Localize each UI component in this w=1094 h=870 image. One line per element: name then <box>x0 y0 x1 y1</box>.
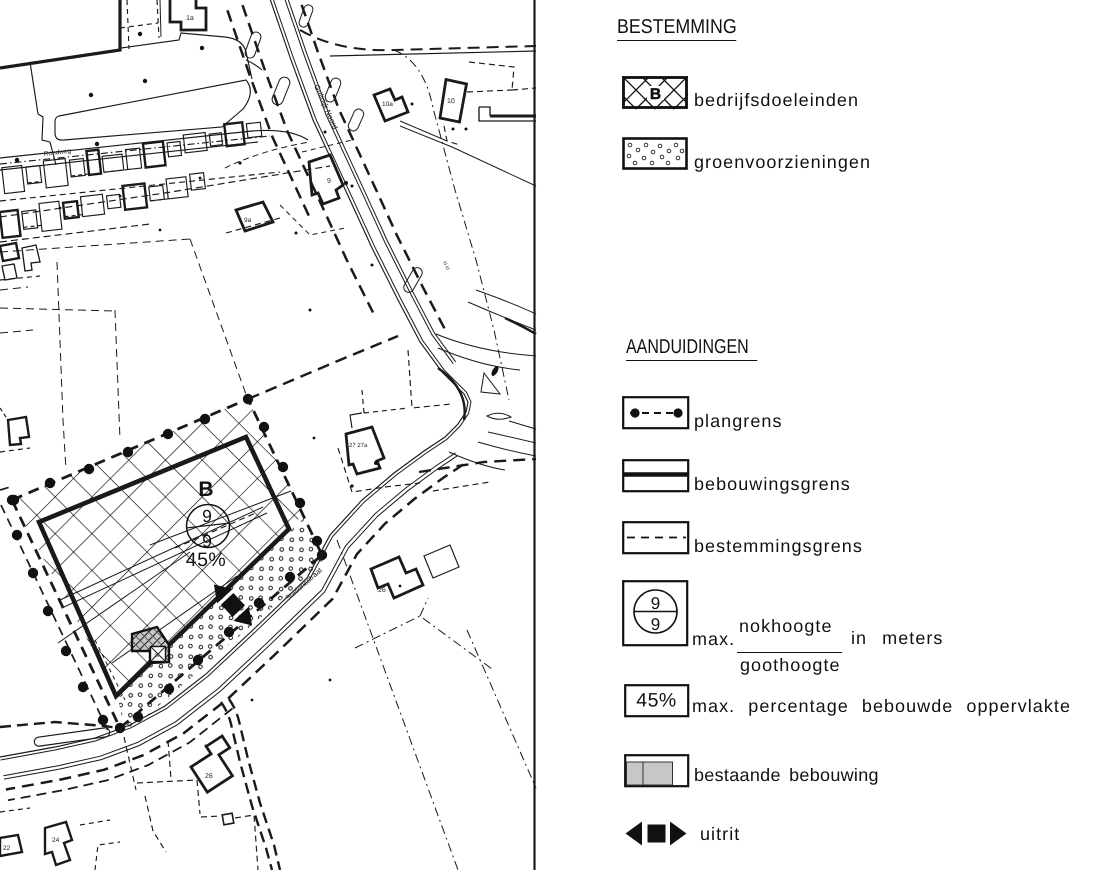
svg-text:24: 24 <box>52 837 60 844</box>
svg-text:9: 9 <box>651 615 660 634</box>
svg-text:10a: 10a <box>382 101 393 108</box>
svg-text:26: 26 <box>378 587 386 594</box>
svg-text:27 27a: 27 27a <box>349 442 368 449</box>
svg-text:9: 9 <box>202 531 212 551</box>
svg-text:9: 9 <box>202 506 212 526</box>
svg-text:45%: 45% <box>186 549 227 571</box>
svg-text:9: 9 <box>327 178 331 185</box>
svg-text:26: 26 <box>205 773 213 780</box>
svg-text:36: 36 <box>154 653 160 659</box>
svg-text:B: B <box>650 86 661 103</box>
svg-text:45%: 45% <box>636 690 677 712</box>
svg-text:9a: 9a <box>244 217 252 224</box>
svg-text:1a: 1a <box>186 15 194 22</box>
svg-text:10: 10 <box>447 98 455 105</box>
svg-text:B: B <box>198 478 213 501</box>
svg-text:22: 22 <box>3 845 11 852</box>
svg-text:Griftdijk Noord: Griftdijk Noord <box>312 83 340 130</box>
svg-text:9: 9 <box>651 594 660 613</box>
svg-text:ld.ld: ld.ld <box>441 260 450 271</box>
